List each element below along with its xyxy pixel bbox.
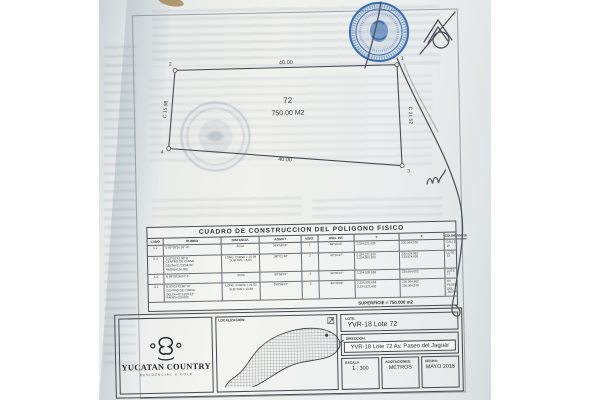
pen-stroke-faint: [404, 64, 438, 132]
pen-arrow-mark: [424, 20, 452, 42]
pen-stroke: [365, 2, 381, 68]
pen-long-stroke: [397, 58, 463, 316]
signature-squiggle: [427, 170, 446, 184]
pen-marks-overlay: [0, 0, 600, 400]
scanned-document-photo: 2 1 4 3 40.00 40.00 C 15.98 C 21.52 72 7…: [0, 0, 600, 400]
